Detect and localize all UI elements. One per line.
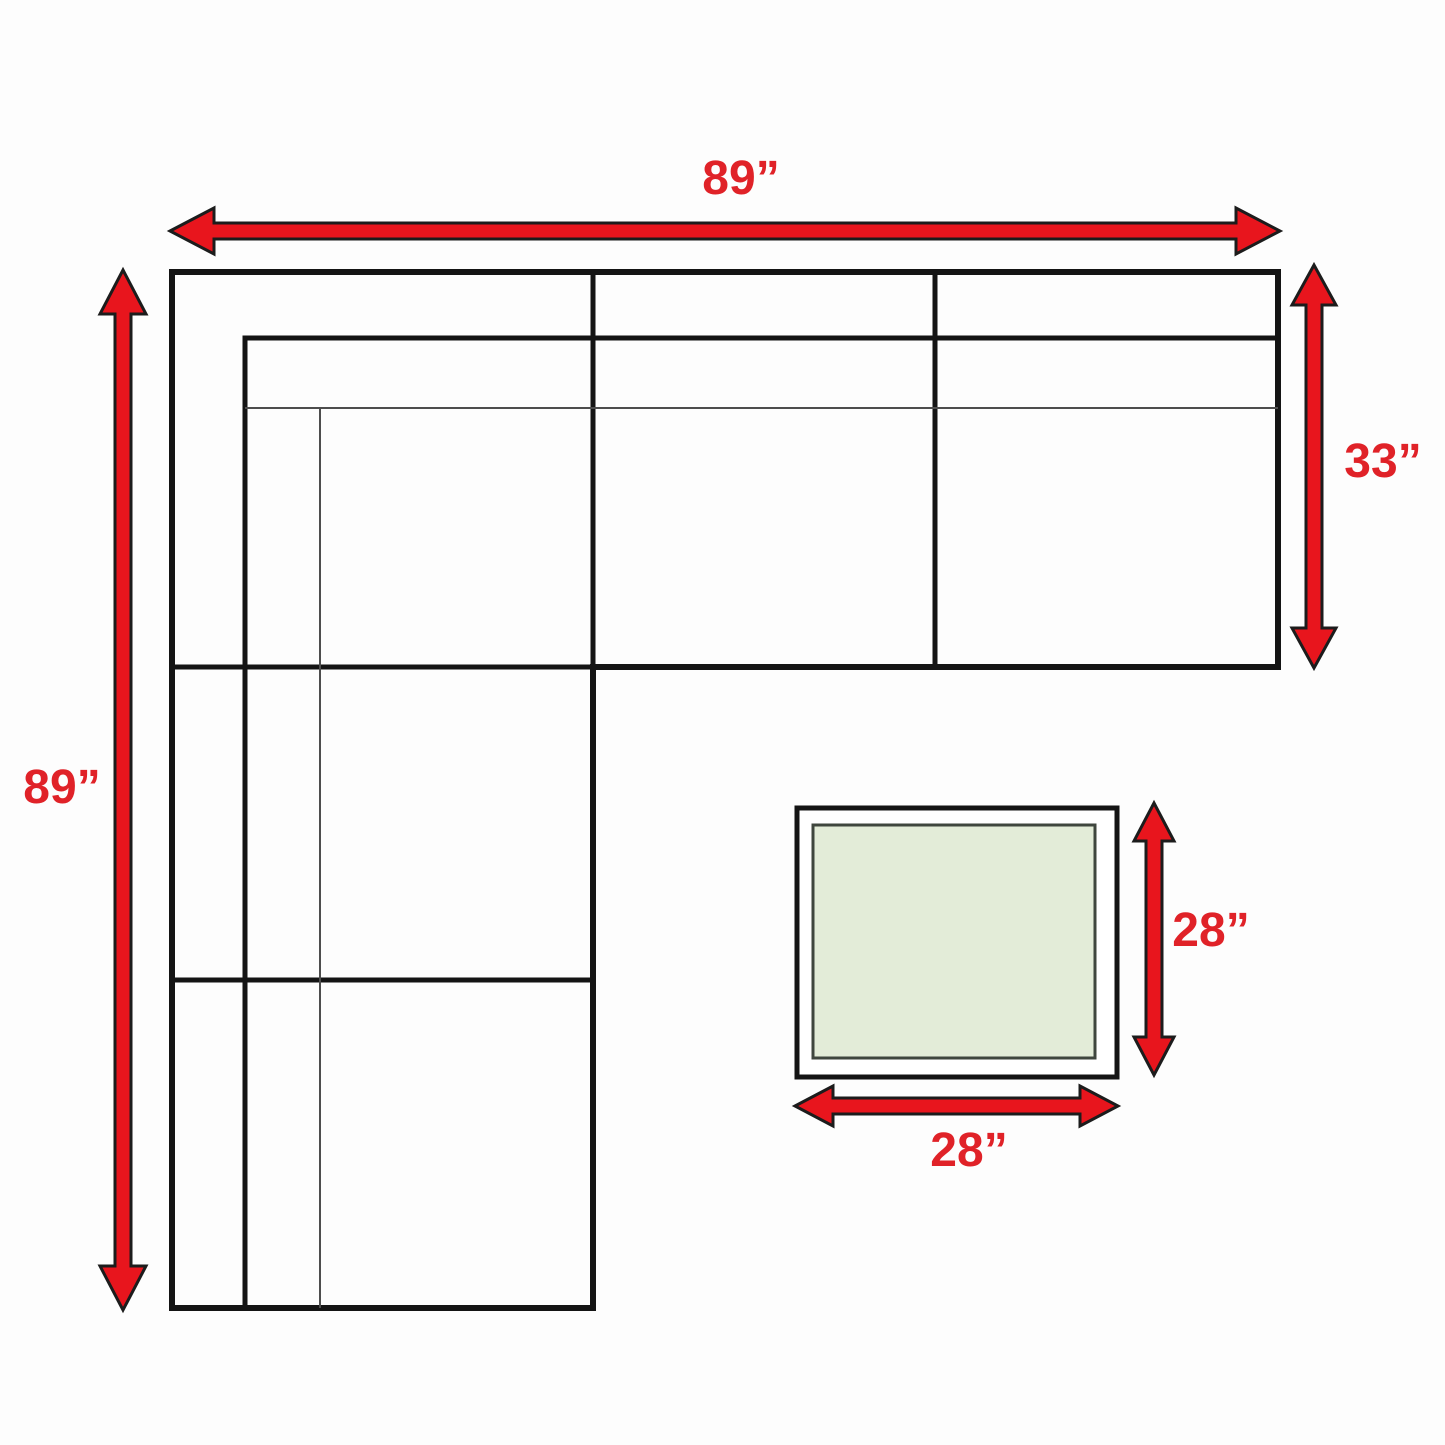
sofa-width-label: 89” [702,155,779,203]
sofa-backrest-line [245,338,1278,1308]
sofa-depth-arrow [100,270,146,1310]
table-depth-label: 28” [1172,907,1249,955]
sofa-depth-label: 89” [23,764,100,812]
diagram-canvas: 89” 89” 33” 28” 28” [0,0,1445,1445]
table-width-label: 28” [930,1127,1007,1175]
sofa-width-arrow [170,208,1280,254]
sofa-section-depth-arrow [1292,265,1336,668]
dimension-diagram [0,0,1445,1445]
table-width-arrow [795,1086,1118,1126]
sofa-section-depth-label: 33” [1344,438,1421,486]
table-depth-arrow [1134,803,1174,1075]
table-top [813,825,1095,1058]
sofa-outline [172,272,1278,1308]
